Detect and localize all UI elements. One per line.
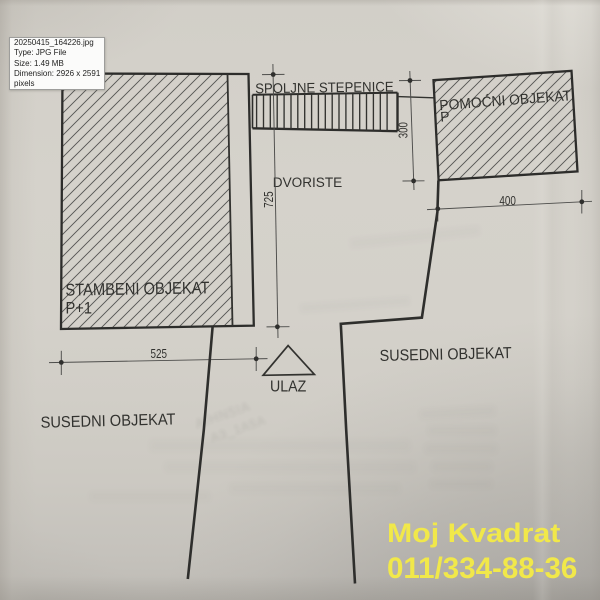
svg-text:300: 300 <box>396 122 411 138</box>
svg-text:ULAZ: ULAZ <box>270 378 306 395</box>
svg-text:P+1: P+1 <box>66 299 93 318</box>
svg-text:SUSEDNI OBJEKAT: SUSEDNI OBJEKAT <box>40 411 176 431</box>
svg-text:DVORISTE: DVORISTE <box>273 175 342 191</box>
svg-text:P: P <box>440 108 451 125</box>
svg-text:STAMBENI OBJEKAT: STAMBENI OBJEKAT <box>65 278 209 299</box>
svg-text:725: 725 <box>261 191 276 208</box>
svg-text:400: 400 <box>499 193 516 208</box>
svg-text:525: 525 <box>151 346 168 361</box>
svg-text:SUSEDNI OBJEKAT: SUSEDNI OBJEKAT <box>380 345 513 365</box>
svg-text:SPOLJNE STEPENICE: SPOLJNE STEPENICE <box>255 78 394 96</box>
